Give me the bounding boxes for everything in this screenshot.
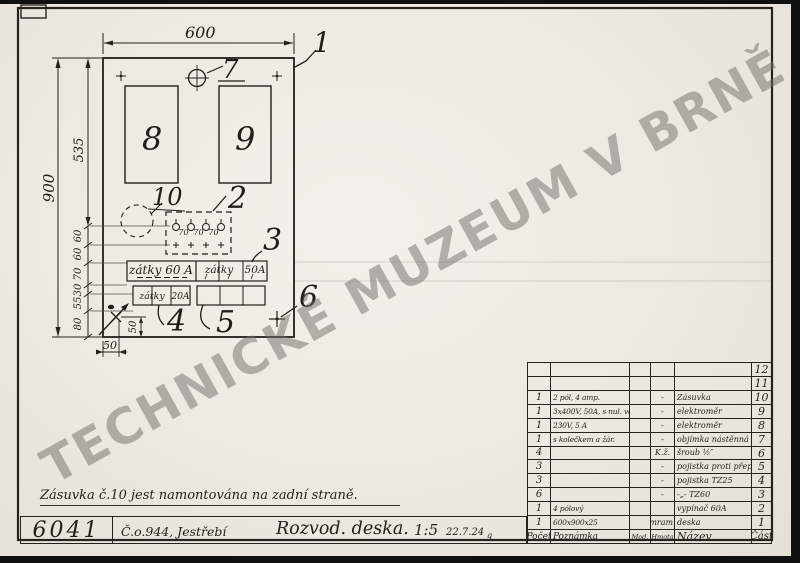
spacing-label: 70: [208, 228, 218, 237]
spacing-label: 70: [193, 228, 203, 237]
cell-mod: [630, 474, 651, 487]
cell-pocet: 1: [528, 405, 551, 418]
cell-hmota: -: [651, 460, 675, 473]
scale-value: 1:5: [414, 521, 438, 539]
cell-cast: 3: [752, 488, 771, 501]
spacing-label: 70: [178, 228, 188, 237]
cell-hmota: -: [651, 433, 675, 446]
cell-pocet: 1: [528, 502, 551, 515]
table-row: 3 - pojistka proti přepětí 5: [528, 460, 771, 474]
cell-cast: 4: [752, 474, 771, 487]
parts-table: 12 11 1 2 pól, 4 amp. - Zásuvka 10 1 3x4…: [527, 362, 772, 544]
paper-sheet: 600 1 900 535 60 60 70: [0, 4, 791, 556]
callout-3-leader: [252, 251, 262, 262]
cell-poznamka: [551, 474, 630, 487]
cell-mod: [630, 433, 651, 446]
cell-cast: 11: [752, 377, 771, 390]
cell-cast: 10: [752, 391, 771, 404]
date-mark: g: [487, 531, 492, 540]
callout-4-leader: [158, 305, 164, 325]
header-poznamka: Poznámka: [551, 530, 630, 543]
table-row: 1 230V, 5 A - elektroměr 8: [528, 419, 771, 433]
callout-2: 2: [227, 181, 247, 216]
cell-nazev: elektroměr: [675, 419, 752, 432]
cell-nazev: [675, 377, 752, 390]
rear-socket-symbol: [121, 205, 153, 237]
note-text: Zásuvka č.10 jest namontována na zadní s…: [40, 488, 400, 506]
chain-label: 70: [73, 267, 84, 280]
callout-5-leader: [201, 305, 210, 329]
cell-nazev: objímka nástěnná: [675, 433, 752, 446]
drawing-title: Rozvod. deska.: [276, 519, 409, 539]
table-row: 1 3x400V, 50A, s nul. vod. - elektroměr …: [528, 405, 771, 419]
cell-mod: [630, 405, 651, 418]
callout-7: 7: [222, 55, 239, 85]
fuse-strip-1-label: zátky 60 A: [128, 263, 193, 277]
cell-nazev: deska: [675, 516, 752, 529]
table-row: 1 2 pól, 4 amp. - Zásuvka 10: [528, 391, 771, 405]
dim-chain: [84, 223, 92, 340]
table-row: 4 K.ž. šroub ½″ 6: [528, 447, 771, 461]
cell-hmota: [651, 502, 675, 515]
cell-pocet: 1: [528, 391, 551, 404]
cell-cast: 7: [752, 433, 771, 446]
cell-poznamka: 4 pólový: [551, 502, 630, 515]
table-header-row: Počet Poznámka Mod. Hmota Název Část: [528, 530, 771, 543]
header-cast: Část: [752, 530, 771, 543]
callout-4: 4: [166, 304, 186, 339]
mounting-hole-top-left: [116, 71, 126, 81]
title-block: 6041 Č.o.944, Jestřebí Rozvod. deska. 1:…: [20, 516, 527, 544]
fuse-strip-1b-amp: 50A: [245, 264, 266, 276]
cell-mod: [630, 377, 651, 390]
cell-hmota: mram.: [651, 516, 675, 529]
fuse-strip-2-amp: 20A: [171, 292, 190, 302]
cell-hmota: [651, 363, 675, 376]
cell-poznamka: [551, 363, 630, 376]
cell-poznamka: [551, 488, 630, 501]
table-row: 12: [528, 363, 771, 377]
cell-poznamka: 2 pól, 4 amp.: [551, 391, 630, 404]
cell-poznamka: [551, 447, 630, 460]
cell-nazev: vypínač 60A: [675, 502, 752, 515]
cell-pocet: [528, 377, 551, 390]
mounting-hole-bottom-right: [269, 306, 297, 327]
cell-mod: [630, 419, 651, 432]
dim-height-label: 900: [40, 173, 58, 202]
dim-top-section-label: 535: [72, 138, 87, 163]
callout-2-leader: [213, 196, 226, 211]
cell-hmota: -: [651, 405, 675, 418]
chain-label: 30: [73, 283, 84, 296]
cell-hmota: [651, 377, 675, 390]
cell-mod: [630, 516, 651, 529]
cell-pocet: 4: [528, 447, 551, 460]
cell-cast: 2: [752, 502, 771, 515]
callout-1: 1: [313, 26, 331, 59]
cell-nazev: pojistka TZ25: [675, 474, 752, 487]
callout-10: 10: [152, 183, 183, 211]
table-row: 11: [528, 377, 771, 391]
cell-hmota: K.ž.: [651, 447, 675, 460]
switch-symbol: 70 70 70: [166, 212, 231, 254]
table-row: 3 - pojistka TZ25 4: [528, 474, 771, 488]
drawing-number: 6041: [21, 517, 113, 543]
cell-pocet: 6: [528, 488, 551, 501]
chain-label: 60: [73, 229, 84, 242]
callout-5: 5: [216, 305, 235, 340]
cell-hmota: -: [651, 419, 675, 432]
table-row: 1 4 pólový vypínač 60A 2: [528, 502, 771, 516]
cell-pocet: 1: [528, 419, 551, 432]
table-row: 1 s kolečkem a žár. - objímka nástěnná 7: [528, 433, 771, 447]
cell-cast: 12: [752, 363, 771, 376]
header-mod: Mod.: [630, 530, 651, 543]
mounting-hole-top-right: [272, 71, 282, 81]
cell-hmota: -: [651, 488, 675, 501]
cell-nazev: Zásuvka: [675, 391, 752, 404]
cell-poznamka: 600x900x25: [551, 516, 630, 529]
cell-nazev: pojistka proti přepětí: [675, 460, 752, 473]
callout-6: 6: [299, 280, 318, 315]
chain-label: 60: [73, 247, 84, 260]
cell-poznamka: 230V, 5 A: [551, 419, 630, 432]
header-pocet: Počet: [528, 530, 551, 543]
cell-pocet: 1: [528, 516, 551, 529]
callout-3: 3: [263, 223, 282, 258]
cell-nazev: [675, 363, 752, 376]
cell-mod: [630, 460, 651, 473]
cell-pocet: 3: [528, 460, 551, 473]
cell-nazev: elektroměr: [675, 405, 752, 418]
cell-cast: 8: [752, 419, 771, 432]
callout-8: 8: [142, 120, 162, 158]
header-nazev: Název: [675, 530, 752, 543]
dim-bottom-label: 50: [103, 339, 117, 352]
cell-poznamka: [551, 377, 630, 390]
table-row: 6 - -„- TZ60 3: [528, 488, 771, 502]
cell-hmota: -: [651, 474, 675, 487]
fuse-strip-3: [197, 286, 265, 305]
dim-width-label: 600: [185, 23, 216, 42]
chain-label: 80: [73, 317, 84, 330]
cell-mod: [630, 391, 651, 404]
cell-mod: [630, 502, 651, 515]
cell-nazev: šroub ½″: [675, 447, 752, 460]
cell-poznamka: [551, 460, 630, 473]
cell-pocet: [528, 363, 551, 376]
cell-poznamka: s kolečkem a žár.: [551, 433, 630, 446]
cell-mod: [630, 447, 651, 460]
cell-nazev: -„- TZ60: [675, 488, 752, 501]
cell-mod: [630, 363, 651, 376]
chain-label: 55: [73, 297, 84, 310]
fuse-strip-1b-label: zátky: [204, 264, 234, 276]
cell-poznamka: 3x400V, 50A, s nul. vod.: [551, 405, 630, 418]
table-row: 1 600x900x25 mram. deska 1: [528, 516, 771, 530]
cell-cast: 6: [752, 447, 771, 460]
cell-pocet: 3: [528, 474, 551, 487]
order-number: Č.o.944, Jestřebí: [121, 524, 226, 539]
cell-cast: 1: [752, 516, 771, 529]
callout-9: 9: [235, 120, 255, 158]
fuse-strip-2-label: zátky: [138, 291, 165, 302]
cell-pocet: 1: [528, 433, 551, 446]
cell-cast: 9: [752, 405, 771, 418]
cell-hmota: -: [651, 391, 675, 404]
dim-hole-label: 50: [128, 320, 139, 333]
header-hmota: Hmota: [651, 530, 675, 543]
date-value: 22.7.24: [446, 527, 484, 538]
cell-cast: 5: [752, 460, 771, 473]
cell-mod: [630, 488, 651, 501]
